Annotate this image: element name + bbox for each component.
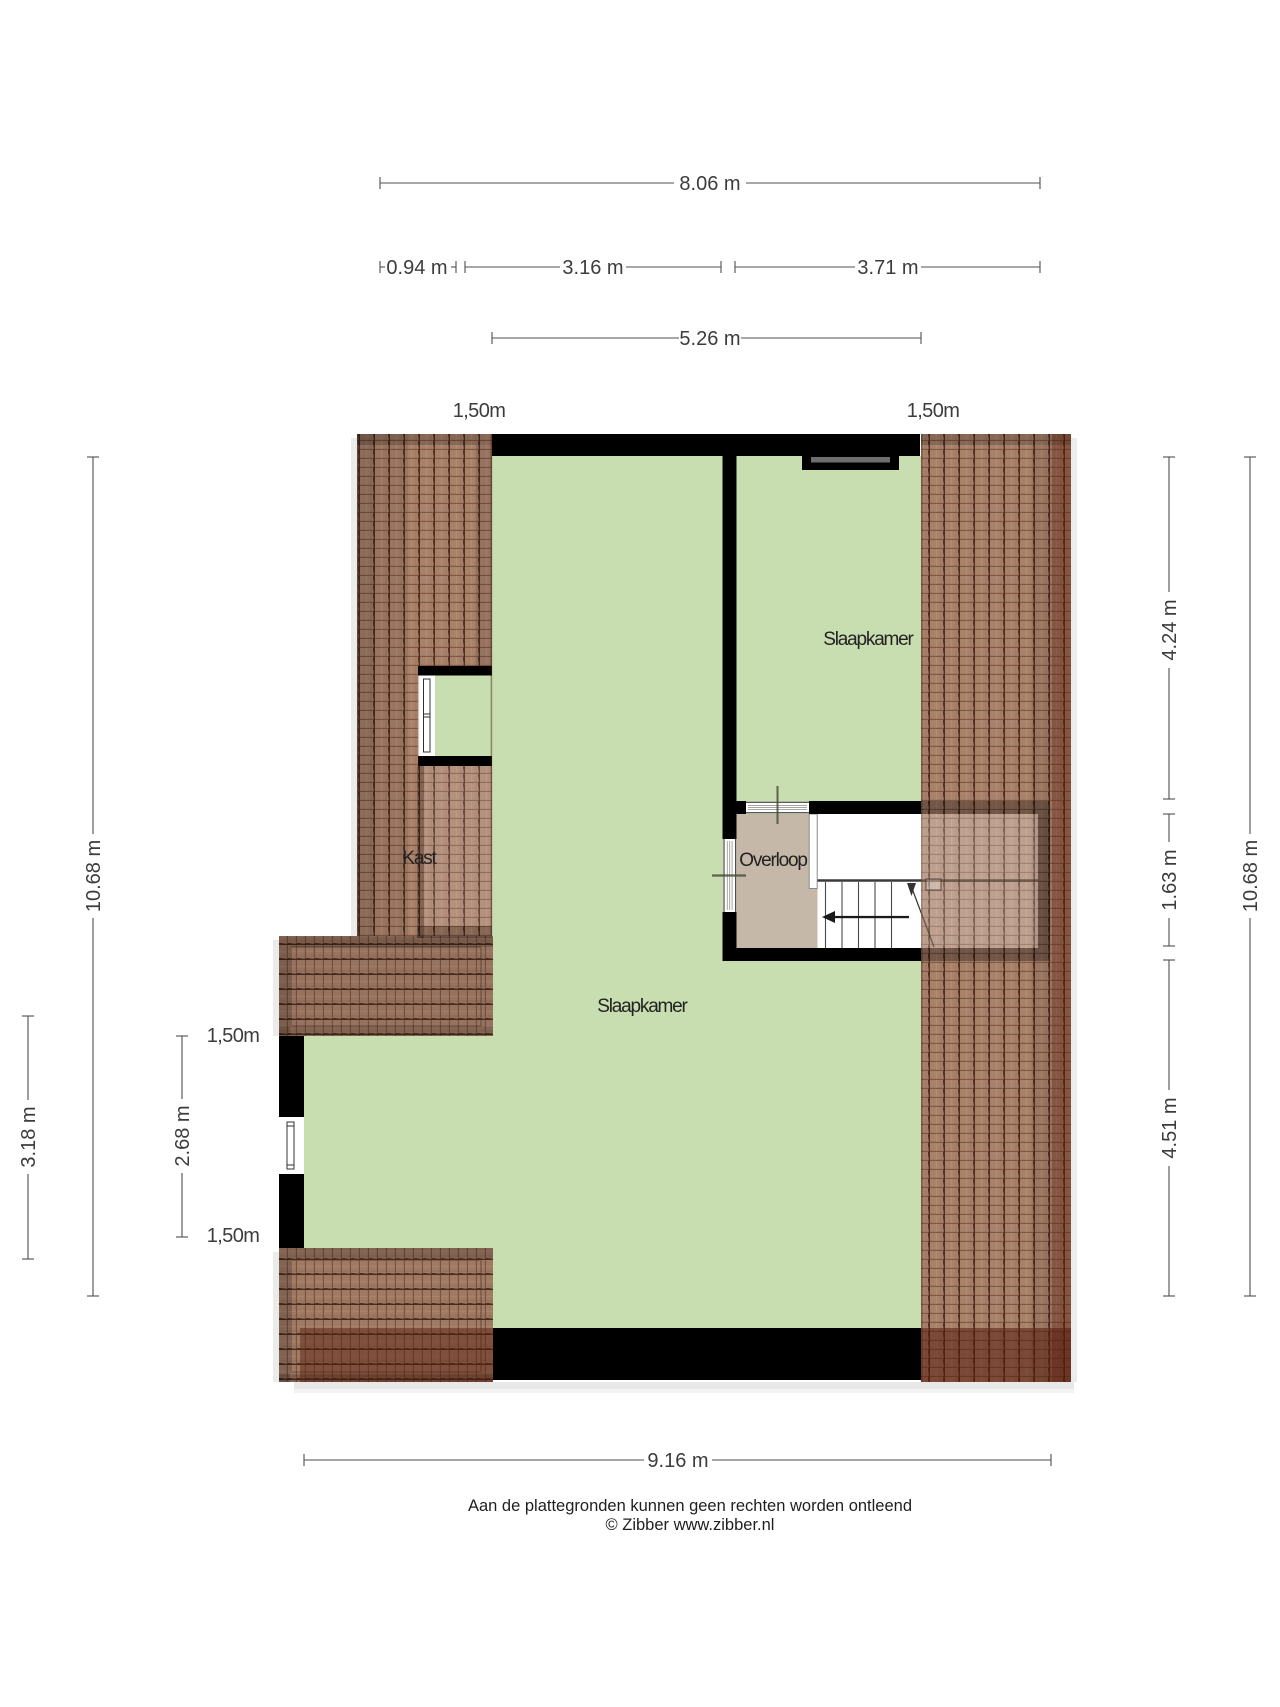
svg-text:2.68 m: 2.68 m [172, 1105, 194, 1166]
svg-text:10.68 m: 10.68 m [83, 840, 105, 912]
svg-text:0.94 m: 0.94 m [386, 257, 447, 279]
svg-text:4.51 m: 4.51 m [1159, 1097, 1181, 1158]
svg-text:5.26 m: 5.26 m [679, 328, 740, 350]
svg-text:3.16 m: 3.16 m [562, 257, 623, 279]
svg-text:Overloop: Overloop [739, 850, 807, 871]
svg-text:Slaapkamer: Slaapkamer [597, 996, 688, 1017]
svg-text:3.18 m: 3.18 m [18, 1106, 40, 1167]
svg-text:1.63 m: 1.63 m [1159, 849, 1181, 910]
svg-text:1,50m: 1,50m [453, 400, 506, 422]
svg-text:3.71 m: 3.71 m [857, 257, 918, 279]
svg-text:9.16 m: 9.16 m [647, 1450, 708, 1472]
svg-text:8.06 m: 8.06 m [679, 173, 740, 195]
svg-text:1,50m: 1,50m [207, 1025, 260, 1047]
svg-text:4.24 m: 4.24 m [1159, 599, 1181, 660]
svg-text:Slaapkamer: Slaapkamer [823, 629, 914, 650]
svg-text:1,50m: 1,50m [907, 400, 960, 422]
svg-text:Aan de plattegronden kunnen ge: Aan de plattegronden kunnen geen rechten… [468, 1497, 912, 1515]
svg-text:10.68 m: 10.68 m [1240, 840, 1262, 912]
svg-text:Kast: Kast [402, 848, 437, 869]
svg-text:1,50m: 1,50m [207, 1225, 260, 1247]
svg-text:© Zibber www.zibber.nl: © Zibber www.zibber.nl [606, 1516, 775, 1534]
